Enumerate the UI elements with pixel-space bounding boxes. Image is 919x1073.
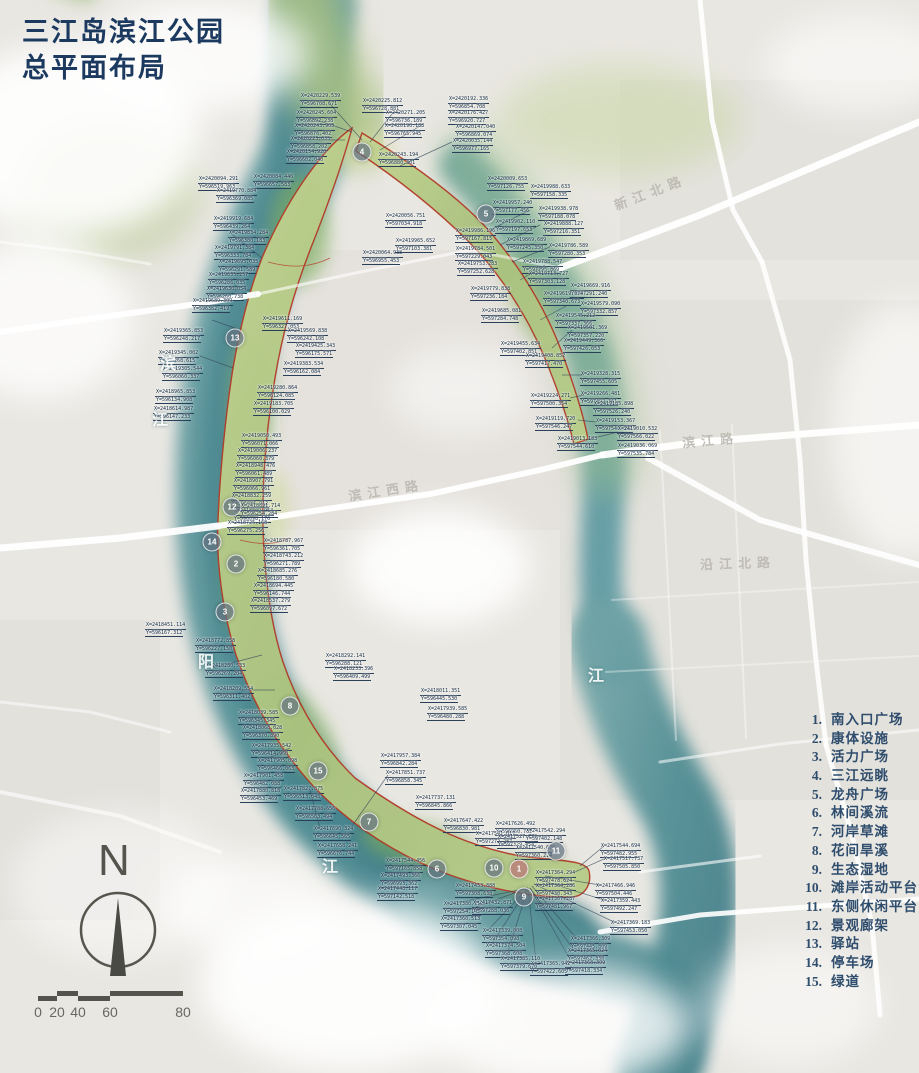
coordinate-label: X=2418685.276Y=596180.580: [257, 568, 298, 583]
coordinate-label: X=2420243.194Y=596880.301: [378, 152, 419, 167]
coordinate-label: X=2419786.589Y=597280.353: [548, 243, 589, 258]
map-marker-9: 9: [515, 888, 534, 907]
coordinate-label: X=2419036.069Y=597535.784: [617, 443, 658, 458]
map-marker-14: 14: [203, 533, 222, 552]
scale-tick-label: 40: [70, 1004, 86, 1020]
coordinate-label: X=2418907.791Y=596066.961: [233, 478, 274, 493]
coordinate-label: X=2419888.127Y=597216.351: [543, 221, 584, 236]
legend-item-number: 1.: [796, 712, 822, 728]
coordinate-label: X=2419408.852Y=597417.470: [525, 353, 566, 368]
legend-item-label: 康体设施: [831, 727, 889, 747]
coordinate-label: X=2417368.309Y=597418.334: [565, 960, 606, 975]
coordinate-label: X=2417360.513Y=597307.045: [440, 916, 481, 931]
coordinate-label: X=2419050.493Y=596071.066: [241, 433, 282, 448]
coordinate-label: X=2419013.183Y=597544.610: [557, 436, 598, 451]
coordinate-label: X=2420056.751Y=597034.918: [385, 213, 426, 228]
scale-tick-label: 60: [102, 1004, 118, 1020]
coordinate-label: X=2418209.554Y=596311.402: [213, 686, 254, 701]
legend-item-label: 景观廊架: [831, 914, 889, 934]
road-label: 沿江北路: [700, 552, 777, 574]
title-line-1: 三江岛滨江公园: [22, 14, 225, 50]
legend-item: 9.生态湿地: [796, 858, 918, 877]
road-label: 滨江西路: [347, 474, 425, 505]
legend-item-label: 花间旱溪: [831, 839, 889, 859]
legend-item-label: 南入口广场: [831, 708, 904, 728]
legend-item: 14.停车场: [796, 951, 918, 970]
legend-item-label: 林间溪流: [831, 801, 889, 821]
page-title: 三江岛滨江公园 总平面布局: [22, 14, 225, 86]
coordinate-label: X=2419425.343Y=596175.571: [295, 343, 336, 358]
legend-item: 1.南入口广场: [796, 708, 918, 727]
coordinate-label: X=2419183.705Y=596100.029: [253, 401, 294, 416]
coordinate-label: X=2418068.028Y=596370.890: [242, 725, 283, 740]
legend-item: 4.三江远眺: [796, 764, 918, 783]
coordinate-label: X=2418725.168Y=596275.256: [227, 520, 268, 535]
legend-item: 7.河岸草滩: [796, 820, 918, 839]
map-marker-4: 4: [353, 143, 372, 162]
coordinate-label: X=2417542.294Y=597402.148: [525, 828, 566, 843]
river-label: 滨: [160, 350, 176, 374]
coordinate-label: X=2417905.098Y=596466.063: [257, 758, 298, 773]
coordinate-label: X=2419365.853Y=596248.217: [163, 328, 204, 343]
map-marker-15: 15: [309, 762, 328, 781]
scale-tick-label: 80: [175, 1004, 191, 1020]
scale-segment: [110, 991, 183, 996]
legend-item-number: 2.: [796, 731, 822, 747]
coordinate-label: X=2420229.539Y=596708.671: [300, 93, 341, 108]
coordinate-label: X=2419965.652Y=597103.381: [395, 238, 436, 253]
legend-item-label: 活力广场: [831, 745, 889, 765]
coordinate-label: X=2419635.257Y=596286.035: [208, 272, 249, 287]
coordinate-label: X=2419770.884Y=596369.085: [216, 188, 257, 203]
legend-item: 12.景观廊架: [796, 914, 918, 933]
coordinate-label: X=2420190.188Y=596765.945: [384, 123, 425, 138]
coordinate-label: X=2417880.818Y=596453.469: [240, 788, 281, 803]
coordinate-label: X=2417385.110Y=597379.670: [500, 956, 541, 971]
legend-item-number: 3.: [796, 749, 822, 765]
coordinate-label: X=2419449.366Y=597426.053: [563, 338, 604, 353]
legend-item: 15.绿道: [796, 970, 918, 989]
coordinate-label: X=2419185.898Y=597526.240: [593, 401, 634, 416]
legend-item-label: 龙舟广场: [831, 783, 889, 803]
coordinate-label: X=2418891.714Y=596254.284: [240, 503, 281, 518]
site-plan-map: X=2420229.539Y=596708.671X=2420225.812Y=…: [0, 0, 919, 1073]
coordinate-label: X=2419919.684Y=596439.264: [213, 216, 254, 231]
coordinate-label: X=2418537.279Y=596097.672: [250, 598, 291, 613]
road-label: 新江北路: [611, 169, 689, 214]
legend-item-number: 5.: [796, 787, 822, 803]
coordinate-label: X=2419779.838Y=597236.184: [470, 286, 511, 301]
coordinate-label: X=2419957.240Y=597177.456: [492, 200, 533, 215]
coordinate-label: X=2419328.315Y=597455.605: [580, 371, 621, 386]
coordinate-label: X=2417339.008Y=597354.098: [482, 928, 523, 943]
coordinate-label: X=2418787.967Y=596361.705: [263, 538, 304, 553]
coordinate-label: X=2417901.458Y=596482.088: [243, 773, 284, 788]
scale-segment: [38, 996, 57, 1001]
coordinate-label: X=2419119.720Y=597546.247: [535, 416, 576, 431]
road-label: 滨江路: [681, 428, 739, 452]
coordinate-label: X=2419713.727Y=597303.128: [528, 271, 569, 286]
legend-item-number: 8.: [796, 843, 822, 859]
legend-item-label: 河岸草滩: [831, 820, 889, 840]
map-marker-11: 11: [547, 842, 566, 861]
river-label: 江: [322, 853, 338, 877]
scale-tick-label: 0: [34, 1004, 42, 1020]
legend-item-label: 生态湿地: [831, 858, 889, 878]
coordinate-label: X=2419010.532Y=597566.022: [617, 426, 658, 441]
coordinate-label: X=2417690.324Y=596645.565: [313, 826, 354, 841]
scale-segment: [78, 996, 110, 1001]
coordinate-label: X=2420035.144Y=596977.165: [452, 138, 493, 153]
coordinate-label: X=2419784.501Y=597229.043: [455, 246, 496, 261]
coordinate-label: X=2419902.110Y=597197.653: [495, 219, 536, 234]
coordinate-label: X=2420147.040Y=596869.074: [455, 124, 496, 139]
coordinate-label: X=2418451.114Y=596167.312: [145, 622, 186, 637]
map-marker-5: 5: [477, 205, 496, 224]
coordinate-label: X=2419689.309Y=596382.419: [192, 298, 233, 313]
coordinate-label: X=2419224.271Y=597500.354: [530, 393, 571, 408]
legend-item-label: 驿站: [831, 932, 860, 952]
legend-item-number: 7.: [796, 824, 822, 840]
legend-item-number: 4.: [796, 768, 822, 784]
coordinate-label: X=2420084.446Y=596657.583: [253, 174, 294, 189]
legend-item-label: 停车场: [831, 951, 875, 971]
coordinate-label: X=2419986.196Y=597167.815: [455, 228, 496, 243]
coordinate-label: X=2417432.871Y=597288.036: [472, 900, 513, 915]
coordinate-label: X=2419383.534Y=596162.084: [283, 361, 324, 376]
coordinate-label: X=2420154.920Y=596602.040: [286, 149, 327, 164]
coordinate-label: X=2419938.978Y=597188.078: [538, 206, 579, 221]
coordinate-label: X=2419869.689Y=597245.350: [506, 237, 547, 252]
legend-item-number: 14.: [796, 955, 822, 971]
map-marker-13: 13: [226, 329, 245, 348]
map-marker-8: 8: [281, 697, 300, 716]
legend-item-number: 12.: [796, 918, 822, 934]
coordinate-label: X=2419280.864Y=596124.085: [257, 385, 298, 400]
legend-item-number: 10.: [796, 880, 822, 896]
legend-item-label: 滩岸活动平台: [831, 876, 918, 896]
legend-item: 11.东侧休闲平台: [796, 895, 918, 914]
coordinate-label: X=2418039.585Y=596345.345: [238, 710, 279, 725]
legend-item: 2.康体设施: [796, 727, 918, 746]
legend-item-number: 13.: [796, 936, 822, 952]
coordinate-label: X=2419791.384Y=596333.784: [214, 245, 255, 260]
map-marker-2: 2: [227, 555, 246, 574]
coordinate-label: X=2420009.653Y=597126.755: [487, 176, 528, 191]
scale-segment: [57, 991, 78, 996]
coordinate-label: X=2417367.287Y=597481.967: [535, 896, 576, 911]
coordinate-label: X=2418694.445Y=596146.744: [253, 583, 294, 598]
coordinate-label: X=2419569.838Y=596242.108: [287, 328, 328, 343]
coordinate-label: X=2420192.336Y=596854.708: [448, 96, 489, 111]
legend-item: 5.龙舟广场: [796, 783, 918, 802]
coordinate-label: X=2420176.427Y=596920.727: [448, 110, 489, 125]
coordinate-label: X=2417851.737Y=596858.345: [385, 770, 426, 785]
scale-tick-label: 20: [49, 1004, 65, 1020]
legend-item-number: 15.: [796, 974, 822, 990]
river-label: 江: [588, 662, 604, 686]
coordinate-label: X=2417788.656Y=596563.494: [295, 806, 336, 821]
legend-item-number: 6.: [796, 805, 822, 821]
legend-item: 13.驿站: [796, 932, 918, 951]
scale-bar: 020406080: [35, 990, 235, 1022]
coordinate-label: X=2418233.396Y=596409.499: [333, 666, 374, 681]
legend-item: 6.林间溪流: [796, 801, 918, 820]
coordinate-label: X=2419834.284Y=596380.183: [228, 230, 269, 245]
river-label: 江: [152, 406, 168, 430]
map-marker-12: 12: [223, 498, 242, 517]
coordinate-label: X=2417737.131Y=596845.866: [415, 795, 456, 810]
legend-item: 10.滩岸活动平台: [796, 876, 918, 895]
map-marker-3: 3: [216, 603, 235, 622]
coordinate-label: X=2417544.456Y=597165.858: [385, 858, 426, 873]
coordinate-label: X=2419753.283Y=597252.628: [457, 261, 498, 276]
coordinate-label: X=2417935.542Y=596414.960: [251, 743, 292, 758]
legend-item-label: 绿道: [831, 970, 860, 990]
map-marker-6: 6: [428, 860, 447, 879]
legend: 1.南入口广场2.康体设施3.活力广场4.三江远眺5.龙舟广场6.林间溪流7.河…: [796, 708, 918, 988]
legend-item-number: 9.: [796, 862, 822, 878]
coordinate-label: X=2417448.117Y=597142.518: [377, 886, 418, 901]
coordinate-label: X=2419006.237Y=596060.379: [237, 448, 278, 463]
coordinate-label: X=2418743.212Y=596271.789: [263, 553, 304, 568]
coordinate-label: X=2417466.946Y=597504.446: [595, 883, 636, 898]
coordinate-label: X=2419988.633Y=597158.335: [530, 184, 571, 199]
coordinate-label: X=2417939.585Y=596480.288: [427, 706, 468, 721]
coordinate-label: X=2417957.384Y=596842.284: [380, 753, 421, 768]
coordinate-label: X=2418011.351Y=596445.530: [420, 688, 461, 703]
legend-item: 3.活力广场: [796, 745, 918, 764]
coordinate-label: X=2419619.374Y=597340.673: [543, 291, 584, 306]
legend-item-number: 11.: [796, 899, 822, 915]
legend-item: 8.花间旱溪: [796, 839, 918, 858]
coordinate-label: X=2417827.875Y=596513.048: [283, 786, 324, 801]
coordinate-label: X=2418948.476Y=596061.489: [235, 463, 276, 478]
coordinate-label: X=2417517.737Y=597505.850: [603, 856, 644, 871]
legend-item-label: 东侧休闲平台: [831, 895, 918, 915]
map-marker-7: 7: [360, 813, 379, 832]
coordinate-label: X=2417369.183Y=597453.050: [610, 920, 651, 935]
title-line-2: 总平面布局: [22, 50, 225, 86]
coordinate-label: X=2418965.853Y=596134.908: [155, 389, 196, 404]
legend-item-label: 三江远眺: [831, 764, 889, 784]
coordinate-label: X=2417359.443Y=597492.247: [600, 898, 641, 913]
map-marker-10: 10: [485, 859, 504, 878]
coordinate-label: X=2419685.081Y=597284.748: [481, 308, 522, 323]
map-marker-1: 1: [510, 860, 529, 879]
coordinate-label: X=2417453.888Y=597308.638: [455, 883, 496, 898]
north-label: N: [98, 836, 130, 886]
river-label: 阳: [198, 648, 214, 672]
